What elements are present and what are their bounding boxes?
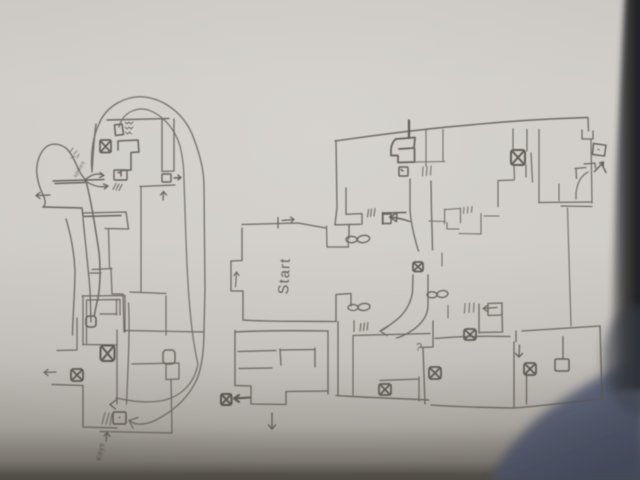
svg-text:Start: Start: [276, 257, 294, 294]
